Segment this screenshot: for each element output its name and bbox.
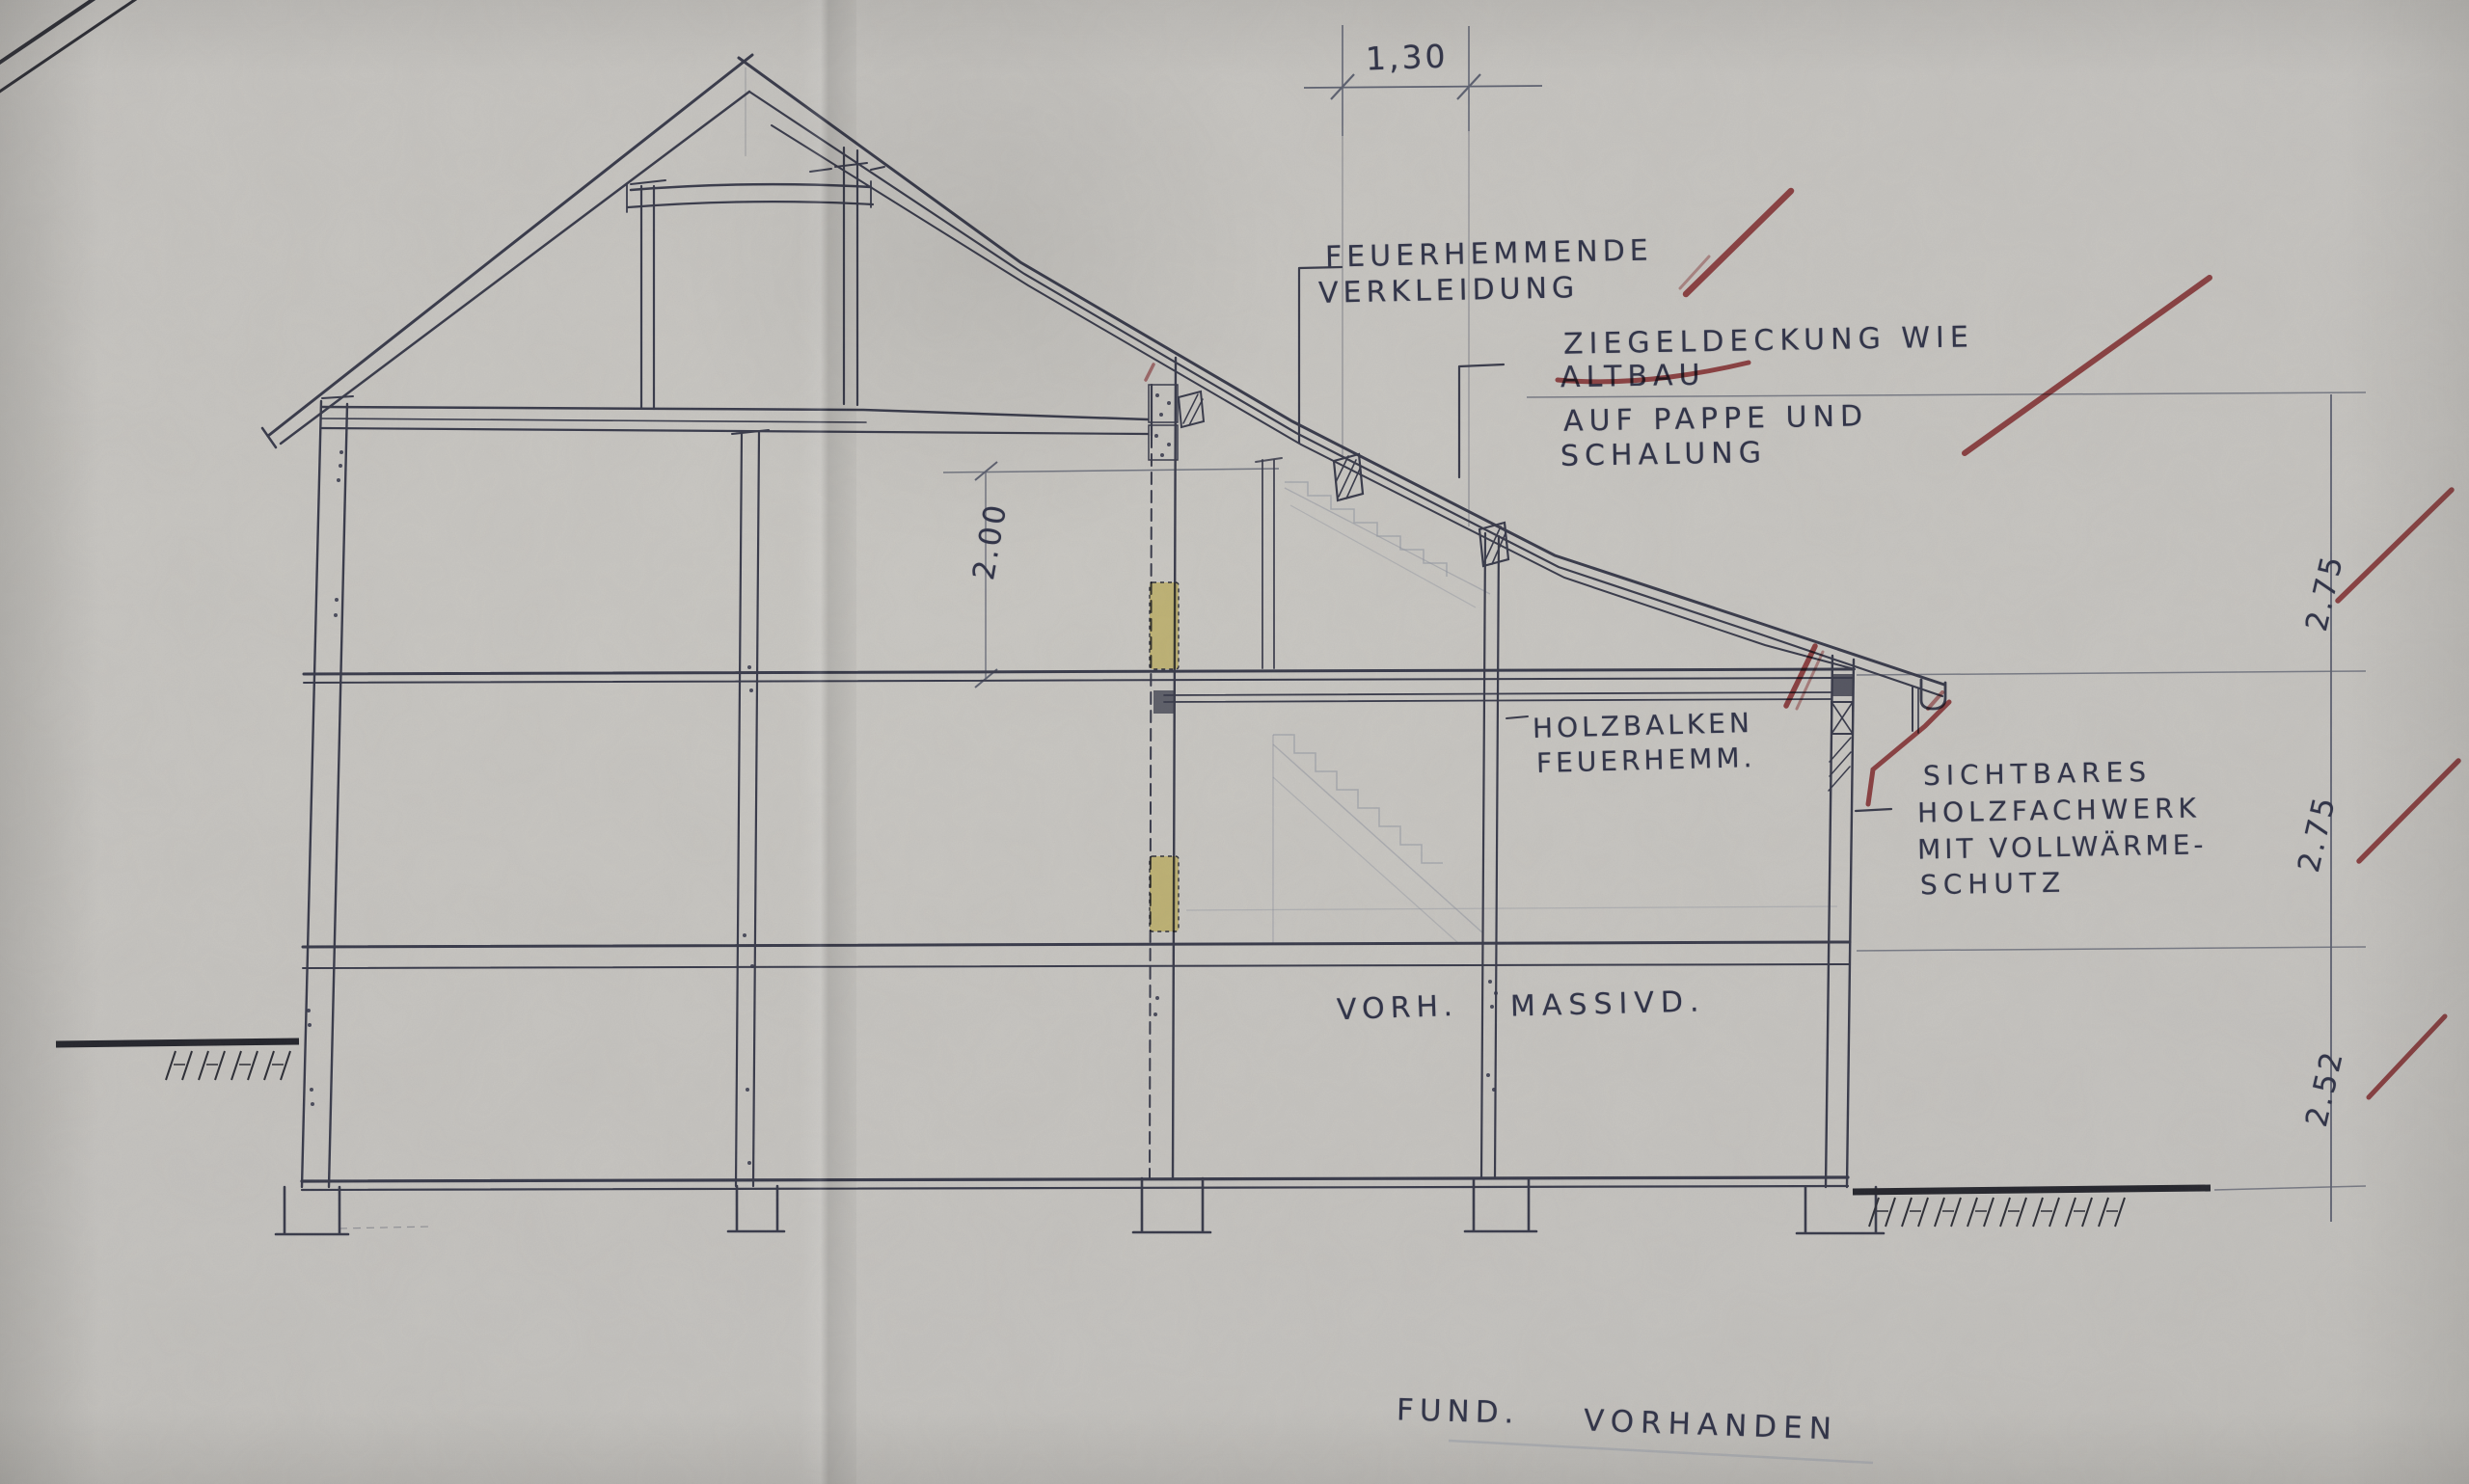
scanned-drawing-sheet: FEUERHEMMENDE VERKLEIDUNG ZIEGELDECKUNG … (0, 0, 2469, 1484)
altbau-strikethrough (1558, 363, 1749, 382)
yellow-highlight-bars (1150, 582, 1179, 931)
red-check-marks (1146, 191, 2458, 1097)
review-markup-overlay (0, 0, 2469, 1484)
